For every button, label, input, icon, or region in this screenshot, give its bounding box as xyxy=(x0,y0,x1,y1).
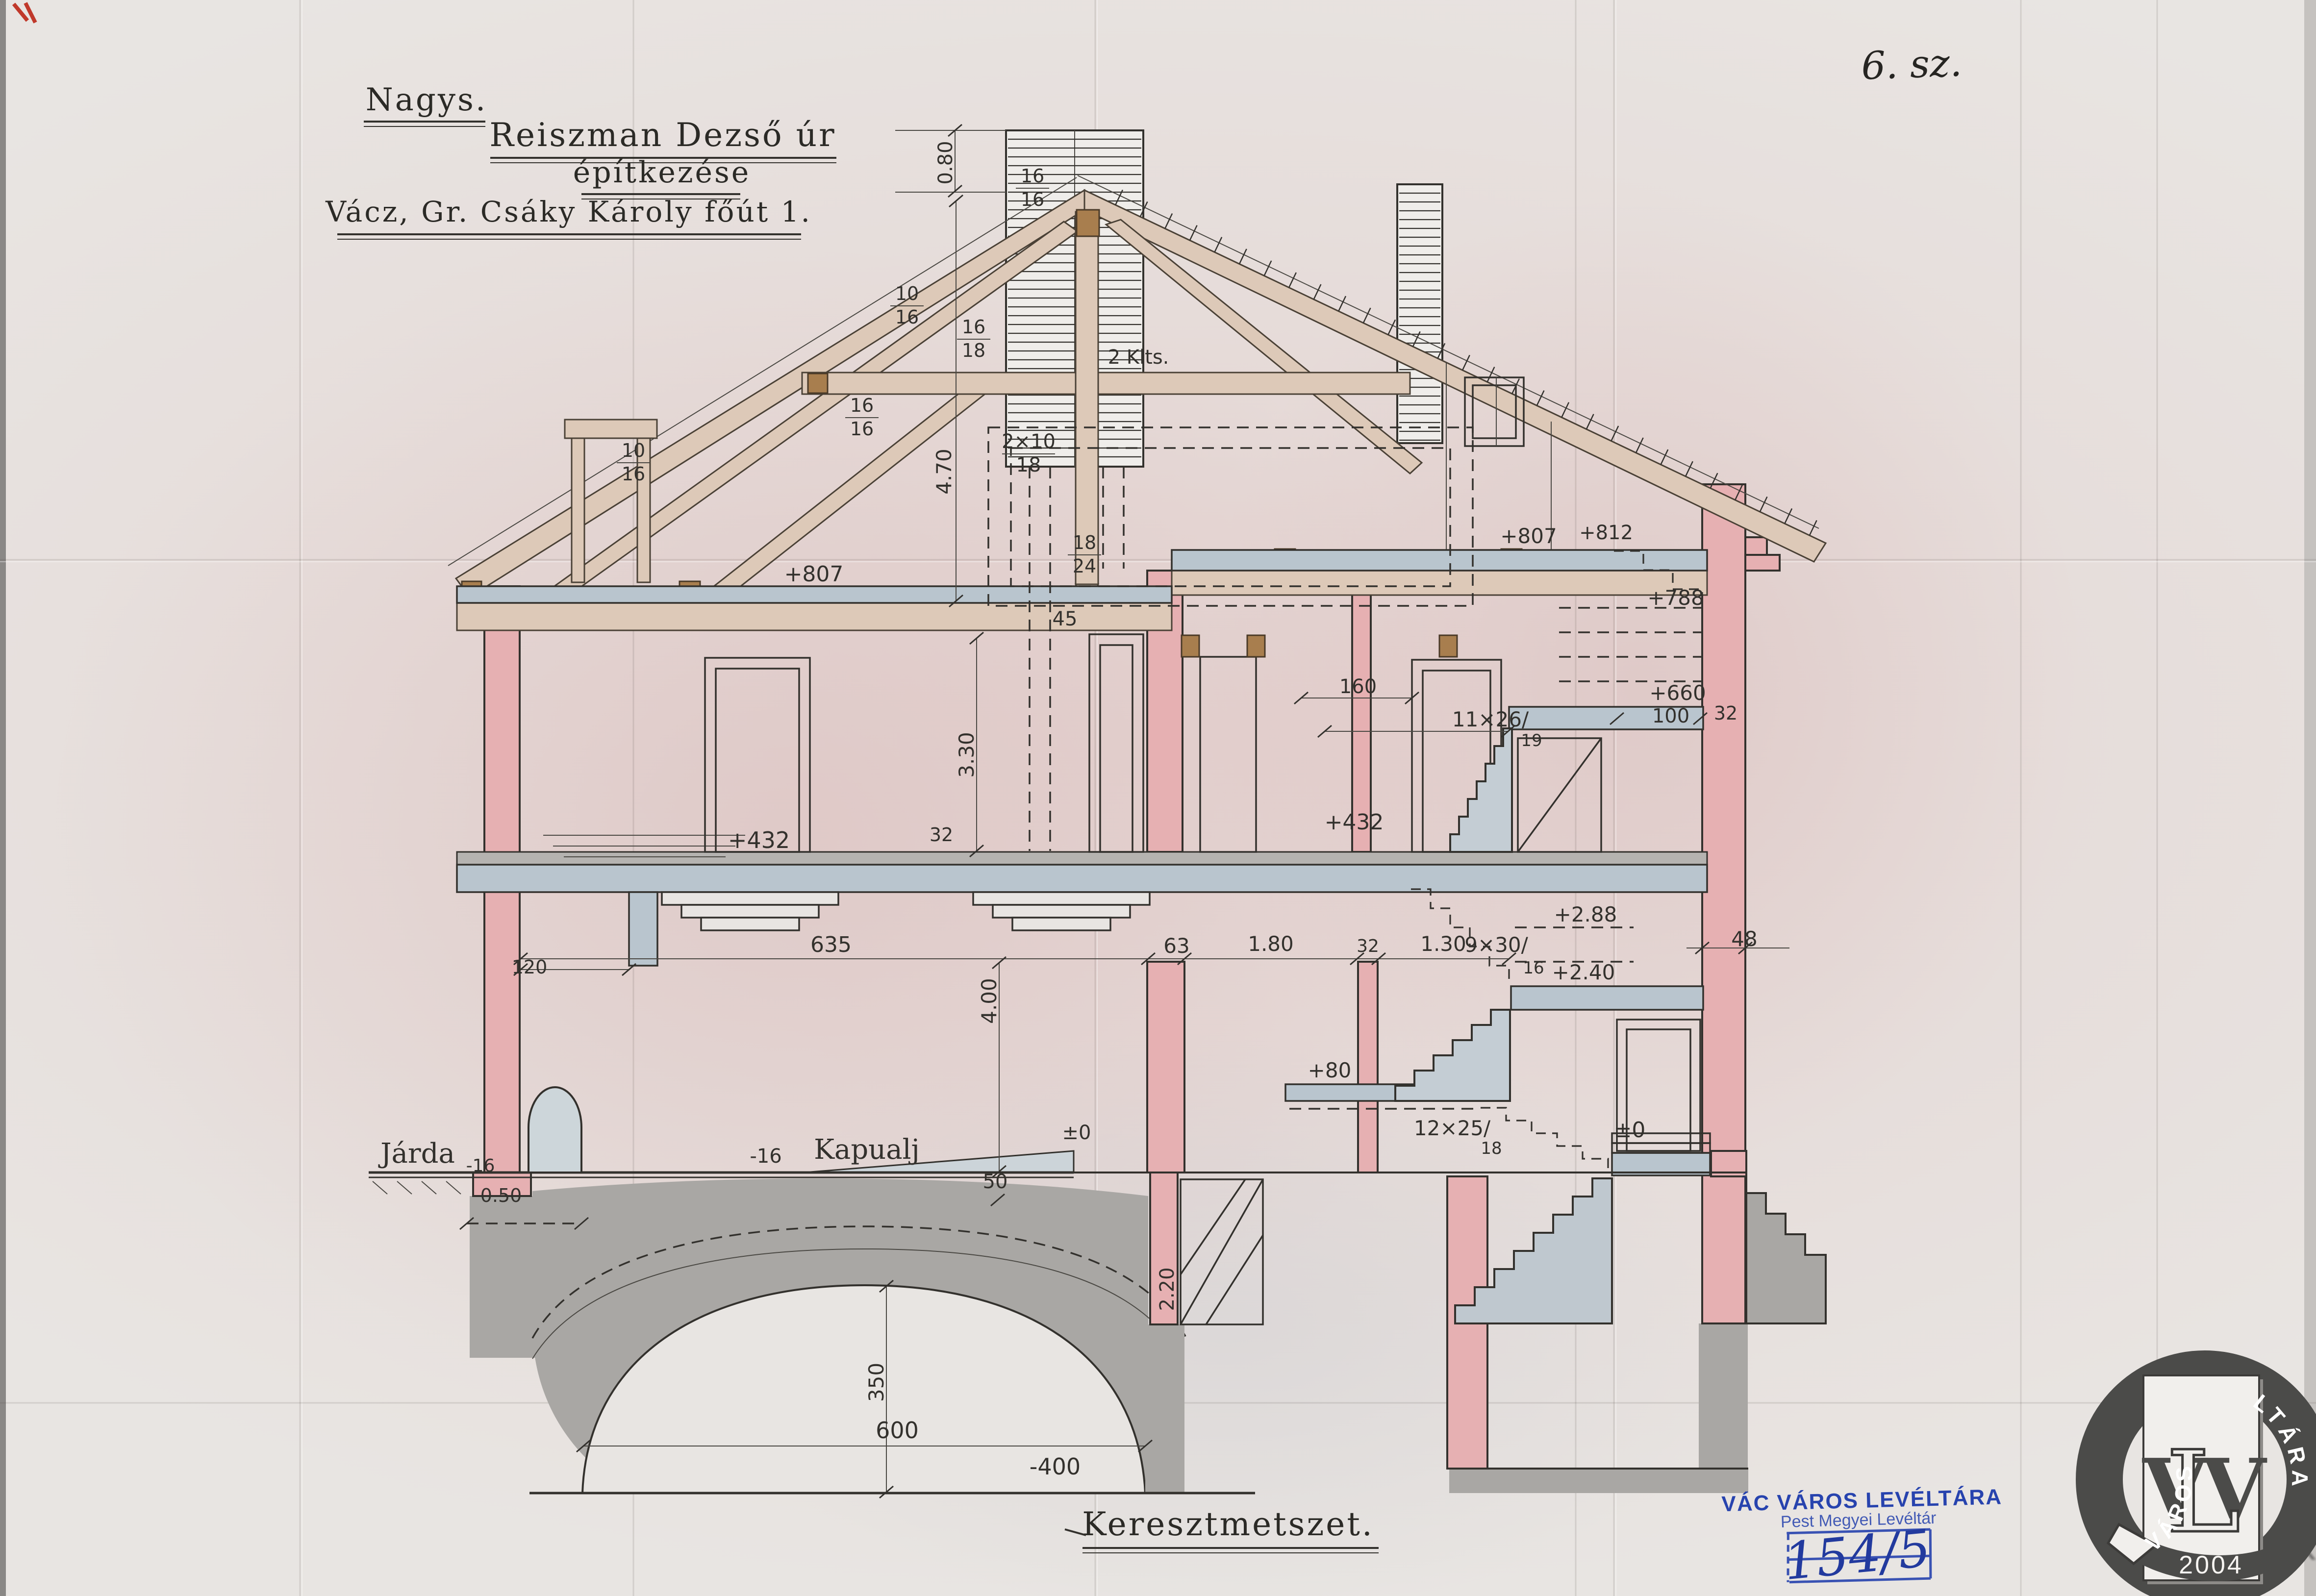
dimension-label: +2.88 xyxy=(1554,902,1617,926)
dimension-label: 32 xyxy=(1357,936,1379,956)
dimension-label: 2.20 xyxy=(1156,1267,1179,1311)
dimension-label: 16 xyxy=(895,306,919,328)
dimension-label: ±0 xyxy=(1062,1122,1091,1144)
dimension-label: 32 xyxy=(930,824,953,846)
dimension-label: 63 xyxy=(1163,934,1189,958)
dimension-label: 4.70 xyxy=(932,449,956,495)
dimension-label: 0.50 xyxy=(480,1185,522,1206)
title-honorific: Nagys. xyxy=(366,82,487,118)
dimension-label: +812 xyxy=(1579,522,1633,544)
dimension-label: 18 xyxy=(1073,532,1096,553)
dimension-label: +80 xyxy=(1308,1058,1352,1082)
dimension-label: 350 xyxy=(864,1363,888,1402)
dimension-label: 100 xyxy=(1652,705,1689,727)
title-address: Vácz, Gr. Csáky Károly főút 1. xyxy=(325,195,812,228)
scanned-drawing-sheet: 0.80161610161618161610162×10184.702 Klts… xyxy=(0,0,2316,1596)
dimension-label: 16 xyxy=(622,463,645,485)
dimension-label: 12×25/ xyxy=(1414,1116,1491,1140)
dimension-label: +432 xyxy=(1325,810,1384,835)
dimension-label: 16 xyxy=(1021,189,1044,210)
dimension-label: 16 xyxy=(850,395,874,416)
dimension-label: 19 xyxy=(1521,731,1542,750)
dimension-label: 1.80 xyxy=(1248,932,1294,956)
sheet-number: 6. sz. xyxy=(1861,41,1963,88)
dimension-label: +660 xyxy=(1649,681,1706,705)
dimension-label: 11×26/ xyxy=(1452,707,1529,731)
dimension-label: 0.80 xyxy=(934,141,957,184)
cross-section-drawing: 0.80161610161618161610162×10184.702 Klts… xyxy=(0,0,2316,1596)
dimension-label: 4.00 xyxy=(977,978,1001,1024)
dimension-label: 16 xyxy=(962,316,985,338)
dimension-label: +432 xyxy=(728,827,790,853)
caption-text: Keresztmetszet. xyxy=(1082,1505,1374,1543)
dimension-label: 10 xyxy=(622,440,645,461)
title-subject: építkezése xyxy=(573,155,751,190)
dimension-label: 2×10 xyxy=(1002,430,1056,453)
dimension-label: -16 xyxy=(466,1156,495,1176)
dimension-label: +807 xyxy=(784,562,844,587)
dimension-label: 18 xyxy=(1481,1139,1502,1158)
dimension-label: 635 xyxy=(810,932,852,957)
dimension-label: 18 xyxy=(962,340,985,361)
dimension-label: 120 xyxy=(512,956,548,978)
dimension-label: 600 xyxy=(876,1417,919,1444)
dimension-label: +807 xyxy=(1500,524,1557,548)
dimension-label: 24 xyxy=(1073,555,1096,577)
dimension-label: Járda xyxy=(378,1138,455,1170)
dimension-label: 10 xyxy=(895,283,919,304)
dimension-label: 1.30 xyxy=(1420,932,1466,956)
dimension-label: 48 xyxy=(1731,927,1757,951)
dimension-label: 45 xyxy=(1053,608,1078,630)
dimension-label: 9×30/ xyxy=(1464,933,1528,957)
seal-year: 2004 xyxy=(2179,1551,2243,1579)
dimension-label: 32 xyxy=(1714,702,1737,724)
dimension-label: 2 Klts. xyxy=(1108,346,1169,369)
dimension-label: 18 xyxy=(1016,454,1041,476)
title-owner: Reiszman Dezső úr xyxy=(489,116,836,154)
dimension-label: 3.30 xyxy=(955,732,979,778)
dimension-label: +788 xyxy=(1647,586,1704,610)
dimension-label: +2.40 xyxy=(1552,960,1615,984)
dimension-label: ±0 xyxy=(1614,1118,1646,1143)
dimension-label: -16 xyxy=(750,1145,781,1168)
dimension-label: -400 xyxy=(1030,1453,1081,1480)
dimension-label: 16 xyxy=(850,418,874,440)
dimension-label: 50 xyxy=(983,1171,1008,1193)
chimney-right xyxy=(1397,184,1442,443)
dimension-label: 16 xyxy=(1523,958,1544,978)
dimension-label: 160 xyxy=(1339,675,1377,698)
dimension-label: Kapualj xyxy=(814,1134,920,1166)
dimension-label: 16 xyxy=(1021,165,1044,187)
